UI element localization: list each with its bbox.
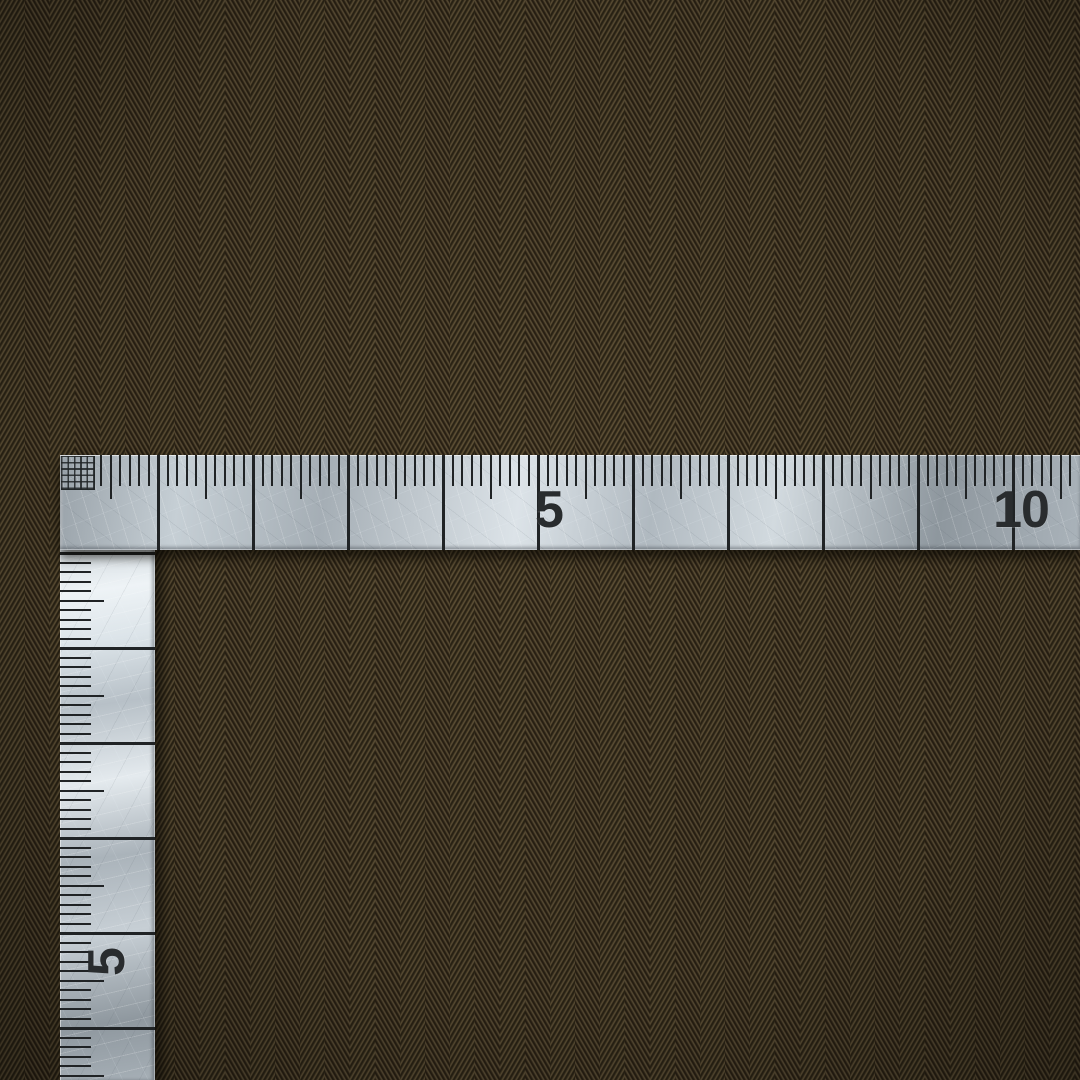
tick-mark: [699, 455, 701, 486]
tick-mark: [670, 455, 672, 486]
tick-mark: [60, 780, 91, 782]
tick-mark: [927, 455, 929, 486]
tick-mark: [528, 455, 530, 486]
tick-mark: [737, 455, 739, 486]
tick-mark: [167, 455, 169, 486]
tick-mark: [60, 695, 104, 697]
tick-mark: [60, 600, 104, 602]
tick-mark: [965, 455, 967, 499]
tick-mark: [822, 455, 825, 550]
horizontal-tick-marks: [60, 455, 1080, 550]
tick-mark: [879, 455, 881, 486]
tick-mark: [756, 455, 758, 486]
tick-mark: [60, 866, 91, 868]
tick-mark: [661, 455, 663, 486]
tick-mark: [946, 455, 948, 486]
tick-mark: [936, 455, 938, 486]
tick-mark: [60, 581, 91, 583]
tick-mark: [271, 455, 273, 486]
tick-mark: [60, 562, 91, 564]
tick-mark: [917, 455, 920, 550]
tick-mark: [214, 455, 216, 486]
tick-mark: [404, 455, 406, 486]
tick-mark: [60, 1008, 91, 1010]
tick-mark: [262, 455, 264, 486]
tick-mark: [870, 455, 872, 499]
tick-mark: [119, 455, 121, 486]
tick-mark: [319, 455, 321, 486]
tick-mark: [328, 455, 330, 486]
tick-mark: [60, 999, 91, 1001]
tick-mark: [60, 752, 91, 754]
tick-mark: [860, 455, 862, 486]
tick-mark: [60, 942, 91, 944]
tick-mark: [60, 685, 91, 687]
tick-mark: [566, 455, 568, 486]
tick-mark: [60, 1018, 91, 1020]
ruler-horizontal-arm: 5 10: [60, 455, 1080, 550]
tick-mark: [60, 885, 104, 887]
vertical-cm-label-5: 5: [81, 948, 133, 976]
tick-mark: [60, 856, 91, 858]
tick-mark: [623, 455, 625, 486]
corner-millimeter-grid: [61, 456, 95, 490]
tick-mark: [60, 818, 91, 820]
tick-mark: [395, 455, 397, 499]
tick-mark: [509, 455, 511, 486]
tick-mark: [60, 837, 155, 840]
tick-mark: [898, 455, 900, 486]
tick-mark: [60, 894, 91, 896]
tick-mark: [205, 455, 207, 499]
tick-mark: [746, 455, 748, 486]
tick-mark: [60, 932, 155, 935]
tick-mark: [290, 455, 292, 486]
tick-mark: [60, 657, 91, 659]
tick-mark: [60, 742, 155, 745]
tick-mark: [461, 455, 463, 486]
tick-mark: [60, 704, 91, 706]
tick-mark: [60, 761, 91, 763]
tick-mark: [157, 455, 160, 550]
tick-mark: [186, 455, 188, 486]
tick-mark: [60, 828, 91, 830]
tick-mark: [300, 455, 302, 499]
tick-mark: [632, 455, 635, 550]
tick-mark: [366, 455, 368, 486]
tick-mark: [775, 455, 777, 499]
tick-mark: [100, 455, 102, 486]
photo-scene: 5 5 10: [0, 0, 1080, 1080]
tick-mark: [60, 552, 155, 555]
tick-mark: [727, 455, 730, 550]
tick-mark: [784, 455, 786, 486]
tick-mark: [889, 455, 891, 486]
tick-mark: [1060, 455, 1062, 499]
tick-mark: [651, 455, 653, 486]
tick-mark: [984, 455, 986, 486]
tick-mark: [176, 455, 178, 486]
tick-mark: [347, 455, 350, 550]
tick-mark: [385, 455, 387, 486]
tick-mark: [357, 455, 359, 486]
tick-mark: [471, 455, 473, 486]
tick-mark: [841, 455, 843, 486]
tick-mark: [974, 455, 976, 486]
tick-mark: [60, 628, 91, 630]
tick-mark: [490, 455, 492, 499]
tick-mark: [60, 1065, 91, 1067]
tick-mark: [60, 714, 91, 716]
tick-mark: [60, 638, 91, 640]
tick-mark: [338, 455, 340, 486]
tick-mark: [642, 455, 644, 486]
tick-mark: [60, 676, 91, 678]
tick-mark: [832, 455, 834, 486]
tick-mark: [138, 455, 140, 486]
horizontal-cm-label-5: 5: [535, 484, 563, 536]
tick-mark: [60, 619, 91, 621]
tick-mark: [585, 455, 587, 499]
tick-mark: [433, 455, 435, 486]
tick-mark: [60, 647, 155, 650]
tick-mark: [442, 455, 445, 550]
tick-mark: [148, 455, 150, 486]
tick-mark: [60, 980, 104, 982]
tick-mark: [281, 455, 283, 486]
tick-mark: [60, 733, 91, 735]
tick-mark: [718, 455, 720, 486]
tick-mark: [680, 455, 682, 499]
tick-mark: [414, 455, 416, 486]
tick-mark: [689, 455, 691, 486]
tick-mark: [129, 455, 131, 486]
tick-mark: [110, 455, 112, 499]
tick-mark: [60, 989, 91, 991]
tick-mark: [60, 571, 91, 573]
tick-mark: [60, 1075, 104, 1077]
tick-mark: [60, 590, 91, 592]
tick-mark: [60, 666, 91, 668]
tick-mark: [60, 771, 91, 773]
horizontal-cm-label-10: 10: [993, 484, 1049, 536]
tick-mark: [794, 455, 796, 486]
tick-mark: [60, 723, 91, 725]
tick-mark: [803, 455, 805, 486]
tick-mark: [195, 455, 197, 486]
tick-mark: [60, 809, 91, 811]
tick-mark: [518, 455, 520, 486]
tick-mark: [594, 455, 596, 486]
tick-mark: [851, 455, 853, 486]
tick-mark: [224, 455, 226, 486]
tick-mark: [423, 455, 425, 486]
tick-mark: [708, 455, 710, 486]
tick-mark: [613, 455, 615, 486]
tick-mark: [376, 455, 378, 486]
tick-mark: [480, 455, 482, 486]
tick-mark: [233, 455, 235, 486]
tick-mark: [243, 455, 245, 486]
tick-mark: [60, 799, 91, 801]
tick-mark: [765, 455, 767, 486]
tick-mark: [813, 455, 815, 486]
tick-mark: [575, 455, 577, 486]
tick-mark: [60, 790, 104, 792]
tick-mark: [60, 1046, 91, 1048]
tick-mark: [309, 455, 311, 486]
tick-mark: [452, 455, 454, 486]
tick-mark: [1069, 455, 1071, 486]
tick-mark: [60, 1056, 91, 1058]
tick-mark: [955, 455, 957, 486]
tick-mark: [60, 847, 91, 849]
tick-mark: [60, 1027, 155, 1030]
tick-mark: [60, 904, 91, 906]
tick-mark: [60, 875, 91, 877]
tick-mark: [908, 455, 910, 486]
tick-mark: [60, 913, 91, 915]
tick-mark: [1050, 455, 1052, 486]
tick-mark: [60, 609, 91, 611]
tick-mark: [499, 455, 501, 486]
tick-mark: [604, 455, 606, 486]
tick-mark: [252, 455, 255, 550]
tick-mark: [60, 923, 91, 925]
tick-mark: [60, 1037, 91, 1039]
